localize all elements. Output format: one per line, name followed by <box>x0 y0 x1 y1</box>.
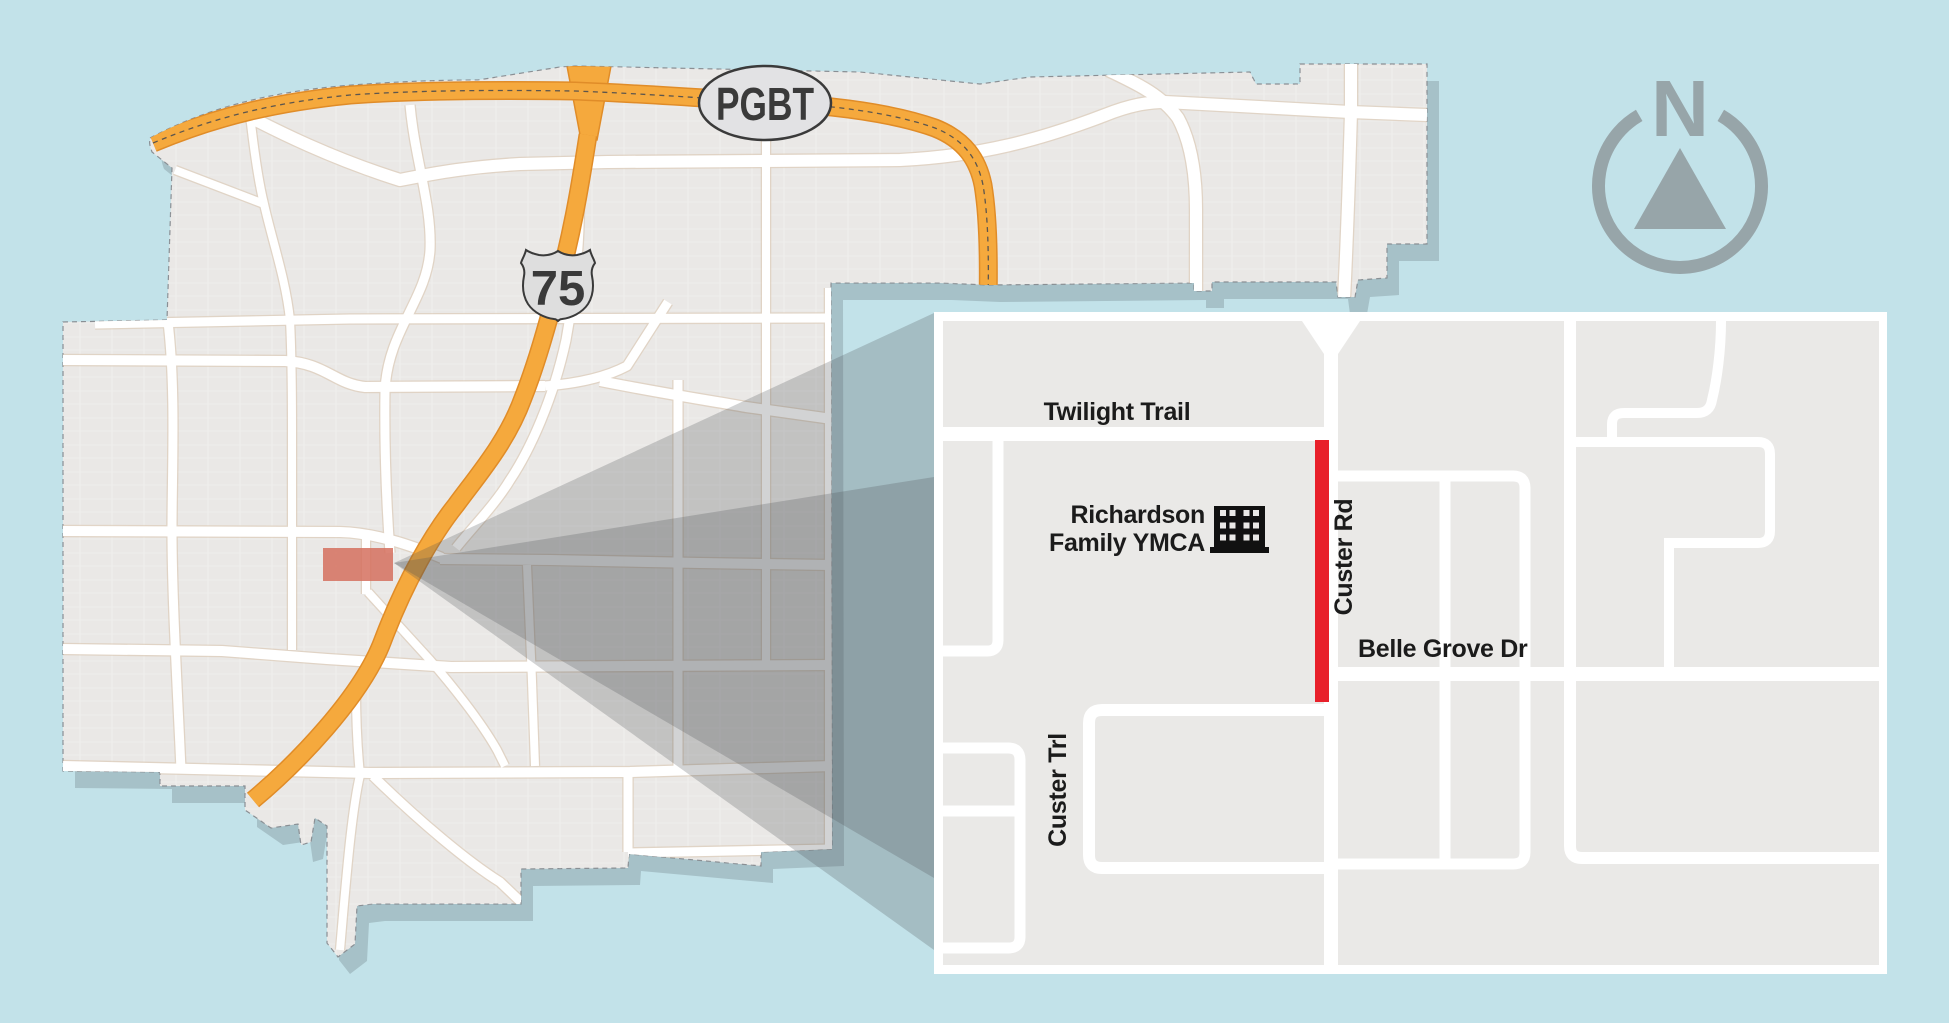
svg-text:Family YMCA: Family YMCA <box>1049 529 1205 557</box>
svg-text:Richardson: Richardson <box>1070 501 1205 529</box>
svg-text:Custer Rd: Custer Rd <box>1330 499 1358 616</box>
svg-text:PGBT: PGBT <box>716 78 814 130</box>
svg-text:N: N <box>1651 64 1709 153</box>
svg-text:Twilight Trail: Twilight Trail <box>1044 398 1191 426</box>
svg-text:75: 75 <box>531 262 586 316</box>
svg-text:Custer Trl: Custer Trl <box>1044 733 1072 847</box>
svg-text:Belle Grove Dr: Belle Grove Dr <box>1358 635 1528 663</box>
